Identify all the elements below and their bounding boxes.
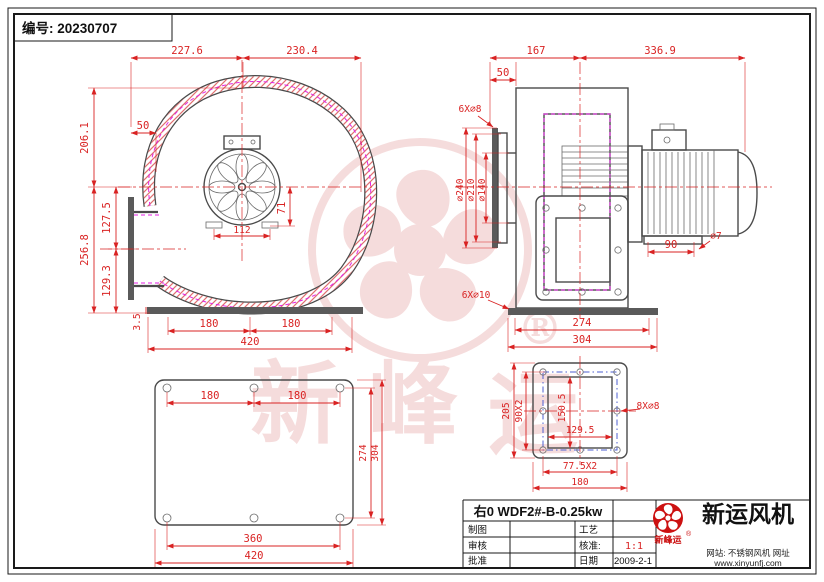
dim-flange-180: 180 [571, 477, 588, 488]
label-approved-scale: 核准: [579, 540, 601, 552]
dim-front-420: 420 [241, 336, 260, 348]
dim-front-206: 206.1 [79, 122, 91, 154]
cad-canvas: ® 新 峰 运 编号: 20230707 [0, 0, 824, 582]
note-base-holes: 6X∅10 [462, 290, 491, 301]
label-checked: 审核 [468, 540, 488, 552]
dim-baseview-274: 274 [358, 444, 369, 461]
dim-side-167: 167 [527, 45, 546, 57]
dim-front-129: 129.3 [101, 265, 113, 297]
dim-dia-7: ∅7 [710, 231, 721, 242]
dim-front-top-right: 230.4 [286, 45, 318, 57]
brand-site-line1: 网站: 不锈钢风机 网址 [706, 548, 790, 558]
brand-name: 新运风机 [702, 501, 794, 527]
dim-front-50: 50 [137, 120, 150, 132]
dim-front-top-left: 227.6 [171, 45, 203, 57]
mount-foot-right [262, 222, 278, 228]
motor-end-cap [738, 152, 757, 234]
label-process: 工艺 [579, 525, 598, 536]
dim-flange-129: 129.5 [566, 425, 595, 436]
doc-number: 编号: 20230707 [22, 20, 117, 36]
dim-baseview-420: 420 [245, 550, 264, 562]
dim-dia-240: ∅240 [455, 178, 466, 201]
dim-flange-90x2: 90X2 [514, 400, 525, 423]
dim-side-304: 304 [573, 334, 592, 346]
dim-dia-210: ∅210 [466, 178, 477, 201]
motor [628, 124, 757, 244]
dim-front-180-left: 180 [200, 318, 219, 330]
label-date: 日期 [579, 556, 598, 567]
dim-front-3-5: 3.5 [132, 313, 143, 330]
watermark-char-1: 新 [250, 351, 340, 457]
brand-area: 新峰运 ® 新运风机 网站: 不锈钢风机 网址 www.xinyunfj.com [653, 501, 794, 568]
dim-side-50: 50 [497, 67, 510, 79]
dim-flange-205: 205 [501, 402, 512, 419]
dim-side-274: 274 [573, 317, 592, 329]
dim-baseview-360: 360 [244, 533, 263, 545]
shaft-stack [562, 146, 628, 196]
model-designation: 右0 WDF2#-B-0.25kw [473, 504, 603, 519]
base-plate-front [147, 307, 363, 314]
dim-front-127: 127.5 [101, 202, 113, 234]
side-view: 167 336.9 50 6X∅8 ∅240 ∅210 ∅140 90 ∅7 6… [455, 45, 772, 352]
base-plate-side [508, 308, 658, 315]
housing-section [516, 88, 628, 308]
note-inlet-holes: 6X∅8 [459, 104, 482, 115]
watermark-char-2: 峰 [368, 351, 458, 457]
dim-motor-90: 90 [665, 239, 678, 251]
brand-registered-mark: ® [686, 530, 692, 538]
dim-front-71: 71 [276, 202, 288, 215]
volute-scroll [149, 81, 371, 308]
label-ratified: 批准 [468, 555, 488, 567]
dim-front-180-right: 180 [282, 318, 301, 330]
label-drafted: 制图 [468, 524, 487, 536]
dim-flange-77x2: 77.5X2 [563, 461, 597, 472]
dim-baseview-304: 304 [370, 444, 381, 461]
dim-baseview-180-right: 180 [288, 390, 307, 402]
dim-baseview-180-left: 180 [201, 390, 220, 402]
brand-logo-caption: 新峰运 [654, 534, 682, 546]
note-flange-holes: 8X∅8 [637, 401, 660, 412]
mount-foot-left [206, 222, 222, 228]
scale-value: 1:1 [625, 541, 643, 552]
dim-dia-140: ∅140 [477, 178, 488, 201]
brand-fan-logo-icon [653, 503, 683, 533]
brand-site-line2: www.xinyunfj.com [713, 558, 782, 568]
side-dimension-lines [466, 58, 745, 347]
outlet-flange-plate [536, 196, 628, 300]
dim-front-112: 112 [233, 225, 250, 236]
drawing-sheet: ® 新 峰 运 编号: 20230707 [0, 0, 824, 582]
terminal-box [652, 130, 686, 150]
dim-side-336: 336.9 [644, 45, 676, 57]
date-value: 2009-2-1 [614, 556, 652, 567]
dim-flange-150: 150.5 [557, 394, 568, 423]
dim-front-256: 256.8 [79, 234, 91, 266]
